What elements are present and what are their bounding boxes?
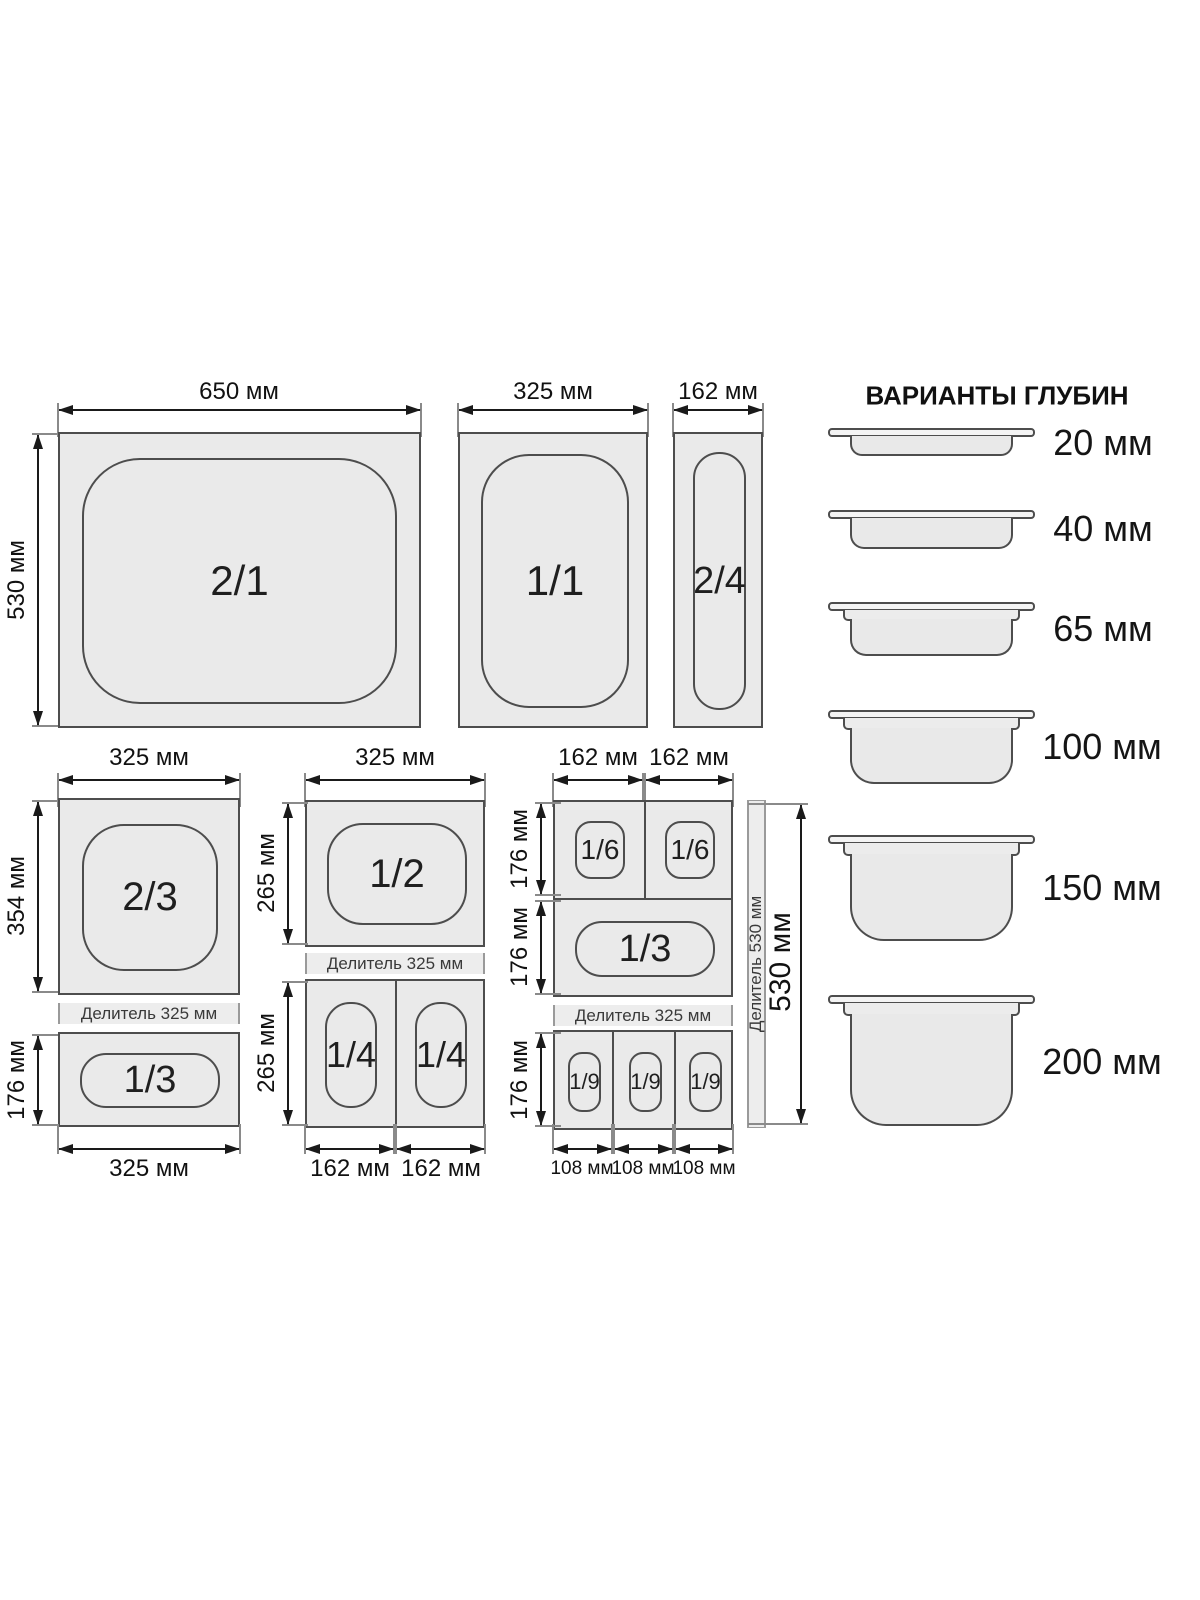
- dim-line-162-top: [673, 409, 763, 411]
- dim-label-162-16b: 162 мм: [649, 744, 729, 772]
- pan-1-4-row: 1/4 1/4: [305, 979, 485, 1128]
- dim-label-530-left: 530 мм: [3, 540, 31, 620]
- dim-line-530-left: [37, 434, 39, 726]
- depth-pan-20mm: [828, 428, 1035, 456]
- divider-bar-left-label: Делитель 325 мм: [81, 1004, 217, 1024]
- pan-1-3-left: 1/3: [58, 1032, 240, 1127]
- pan-1-4-well-2: 1/4: [415, 1002, 467, 1108]
- pan-body: [850, 728, 1013, 784]
- dim-line-108-a: [553, 1148, 612, 1150]
- dim-line-650: [58, 409, 421, 411]
- depth-label-150: 150 мм: [1042, 867, 1162, 909]
- divider-bar-middle: Делитель 325 мм: [305, 953, 485, 974]
- dim-line-162-14b: [396, 1148, 485, 1150]
- pan-1-1-label: 1/1: [526, 557, 584, 605]
- depths-title: ВАРИАНТЫ ГЛУБИН: [865, 381, 1128, 412]
- pan-1-6-divider: [644, 802, 646, 898]
- dim-line-325-23: [58, 779, 240, 781]
- dim-label-108-b: 108 мм: [611, 1158, 674, 1180]
- depth-label-40: 40 мм: [1053, 508, 1153, 550]
- pan-2-1-label: 2/1: [210, 557, 268, 605]
- dim-line-530-right: [800, 804, 802, 1124]
- pan-1-9-well-1: 1/9: [568, 1052, 601, 1112]
- dim-label-354: 354 мм: [3, 856, 31, 936]
- dim-label-162-14b: 162 мм: [401, 1155, 481, 1183]
- dim-line-162-16b: [645, 779, 733, 781]
- pan-1-4-label-2: 1/4: [416, 1034, 466, 1076]
- pan-16-13-divider: [555, 898, 731, 900]
- pan-1-6-label-2: 1/6: [671, 834, 710, 866]
- dim-line-176-19: [540, 1033, 542, 1126]
- dim-label-265-12: 265 мм: [253, 833, 281, 913]
- pan-1-3-right-well: 1/3: [575, 921, 715, 977]
- dim-line-265-14: [287, 982, 289, 1125]
- dim-label-530-right: 530 мм: [764, 912, 798, 1012]
- pan-1-4-well-1: 1/4: [325, 1002, 377, 1108]
- dim-line-325-top1: [458, 409, 648, 411]
- dim-line-354: [37, 801, 39, 992]
- pan-body: [850, 436, 1013, 456]
- depth-pan-200mm: [828, 995, 1035, 1126]
- pan-2-4: 2/4: [673, 432, 763, 728]
- pan-1-6-well-1: 1/6: [575, 821, 625, 879]
- dim-label-162-16a: 162 мм: [558, 744, 638, 772]
- pan-16-13-block: 1/6 1/6 1/3: [553, 800, 733, 997]
- pan-1-4-label-1: 1/4: [326, 1034, 376, 1076]
- dim-label-325-top1: 325 мм: [513, 378, 593, 406]
- dim-label-176-16: 176 мм: [506, 809, 534, 889]
- pan-1-9-well-2: 1/9: [629, 1052, 662, 1112]
- pan-1-9-well-3: 1/9: [689, 1052, 722, 1112]
- depth-pan-40mm: [828, 510, 1035, 549]
- pan-1-1: 1/1: [458, 432, 648, 728]
- pan-1-9-row: 1/9 1/9 1/9: [553, 1030, 733, 1130]
- dim-line-162-16a: [553, 779, 643, 781]
- dim-line-176-left: [37, 1035, 39, 1125]
- dim-label-325-bottom: 325 мм: [109, 1155, 189, 1183]
- dim-line-265-12: [287, 803, 289, 944]
- pan-1-6-label-1: 1/6: [581, 834, 620, 866]
- divider-bar-left: Делитель 325 мм: [58, 1003, 240, 1024]
- dim-label-108-c: 108 мм: [672, 1158, 735, 1180]
- pan-1-2-label: 1/2: [369, 852, 425, 897]
- pan-1-9-label-1: 1/9: [569, 1069, 600, 1095]
- dim-line-108-c: [675, 1148, 733, 1150]
- dim-label-162-14a: 162 мм: [310, 1155, 390, 1183]
- pan-1-4-divider: [395, 981, 397, 1126]
- depth-pan-65mm: [828, 602, 1035, 656]
- dim-line-162-14a: [305, 1148, 394, 1150]
- pan-body: [850, 1014, 1013, 1126]
- pan-2-4-well: 2/4: [693, 452, 746, 710]
- pan-1-9-divider-2: [674, 1032, 676, 1128]
- dim-line-176-13r: [540, 901, 542, 994]
- pan-1-3-left-well: 1/3: [80, 1053, 220, 1108]
- dim-line-176-16: [540, 803, 542, 895]
- dim-label-325-12: 325 мм: [355, 744, 435, 772]
- pan-1-1-well: 1/1: [481, 454, 629, 708]
- pan-2-3: 2/3: [58, 798, 240, 995]
- dim-label-108-a: 108 мм: [550, 1158, 613, 1180]
- dim-label-265-14: 265 мм: [253, 1013, 281, 1093]
- dim-label-650: 650 мм: [199, 378, 279, 406]
- divider-bar-right: Делитель 325 мм: [553, 1005, 733, 1026]
- pan-body: [850, 854, 1013, 941]
- dim-label-176-13r: 176 мм: [506, 907, 534, 987]
- pan-body: [850, 518, 1013, 549]
- dim-line-325-12: [305, 779, 485, 781]
- pan-2-4-label: 2/4: [693, 560, 746, 603]
- dim-line-108-b: [614, 1148, 673, 1150]
- pan-1-2: 1/2: [305, 800, 485, 947]
- pan-1-6-well-2: 1/6: [665, 821, 715, 879]
- dim-label-176-19: 176 мм: [506, 1040, 534, 1120]
- gastronorm-size-diagram: 650 мм 530 мм 2/1 325 мм 1/1 162 мм 2/4 …: [0, 0, 1200, 1600]
- dim-label-162-top: 162 мм: [678, 378, 758, 406]
- pan-2-3-label: 2/3: [122, 875, 178, 920]
- pan-2-3-well: 2/3: [82, 824, 218, 971]
- dim-label-325-23: 325 мм: [109, 744, 189, 772]
- depth-pan-100mm: [828, 710, 1035, 784]
- dim-line-325-bottom: [58, 1148, 240, 1150]
- pan-2-1: 2/1: [58, 432, 421, 728]
- pan-1-9-label-2: 1/9: [630, 1069, 661, 1095]
- depth-label-20: 20 мм: [1053, 422, 1153, 464]
- pan-1-9-divider-1: [612, 1032, 614, 1128]
- depth-label-65: 65 мм: [1053, 608, 1153, 650]
- depth-label-100: 100 мм: [1042, 726, 1162, 768]
- pan-1-9-label-3: 1/9: [690, 1069, 721, 1095]
- depth-pan-150mm: [828, 835, 1035, 941]
- pan-1-3-left-label: 1/3: [124, 1059, 177, 1102]
- divider-bar-middle-label: Делитель 325 мм: [327, 954, 463, 974]
- divider-bar-right-label: Делитель 325 мм: [575, 1006, 711, 1026]
- pan-body: [850, 619, 1013, 656]
- pan-2-1-well: 2/1: [82, 458, 397, 704]
- dim-label-176-left: 176 мм: [3, 1040, 31, 1120]
- pan-1-2-well: 1/2: [327, 823, 467, 925]
- depth-label-200: 200 мм: [1042, 1041, 1162, 1083]
- pan-1-3-right-label: 1/3: [619, 928, 672, 971]
